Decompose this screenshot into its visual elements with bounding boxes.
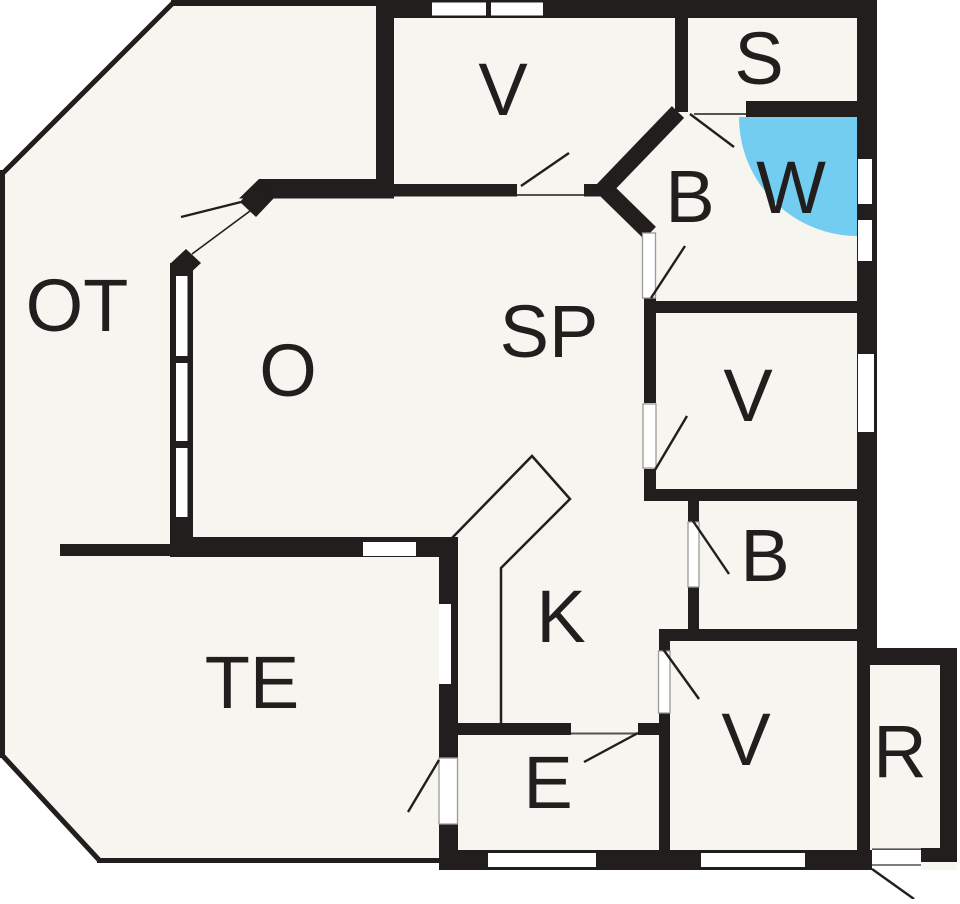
svg-text:R: R bbox=[873, 710, 926, 793]
svg-text:V: V bbox=[721, 698, 771, 781]
svg-text:TE: TE bbox=[205, 641, 300, 724]
svg-text:OT: OT bbox=[26, 264, 129, 347]
svg-text:V: V bbox=[723, 354, 773, 437]
svg-text:B: B bbox=[740, 514, 789, 597]
svg-text:SP: SP bbox=[500, 290, 599, 373]
svg-text:B: B bbox=[665, 155, 714, 238]
svg-text:O: O bbox=[259, 329, 317, 412]
svg-text:V: V bbox=[478, 48, 528, 131]
svg-text:W: W bbox=[756, 146, 826, 229]
svg-text:S: S bbox=[734, 17, 783, 100]
svg-text:K: K bbox=[536, 575, 585, 658]
svg-text:E: E bbox=[523, 741, 572, 824]
